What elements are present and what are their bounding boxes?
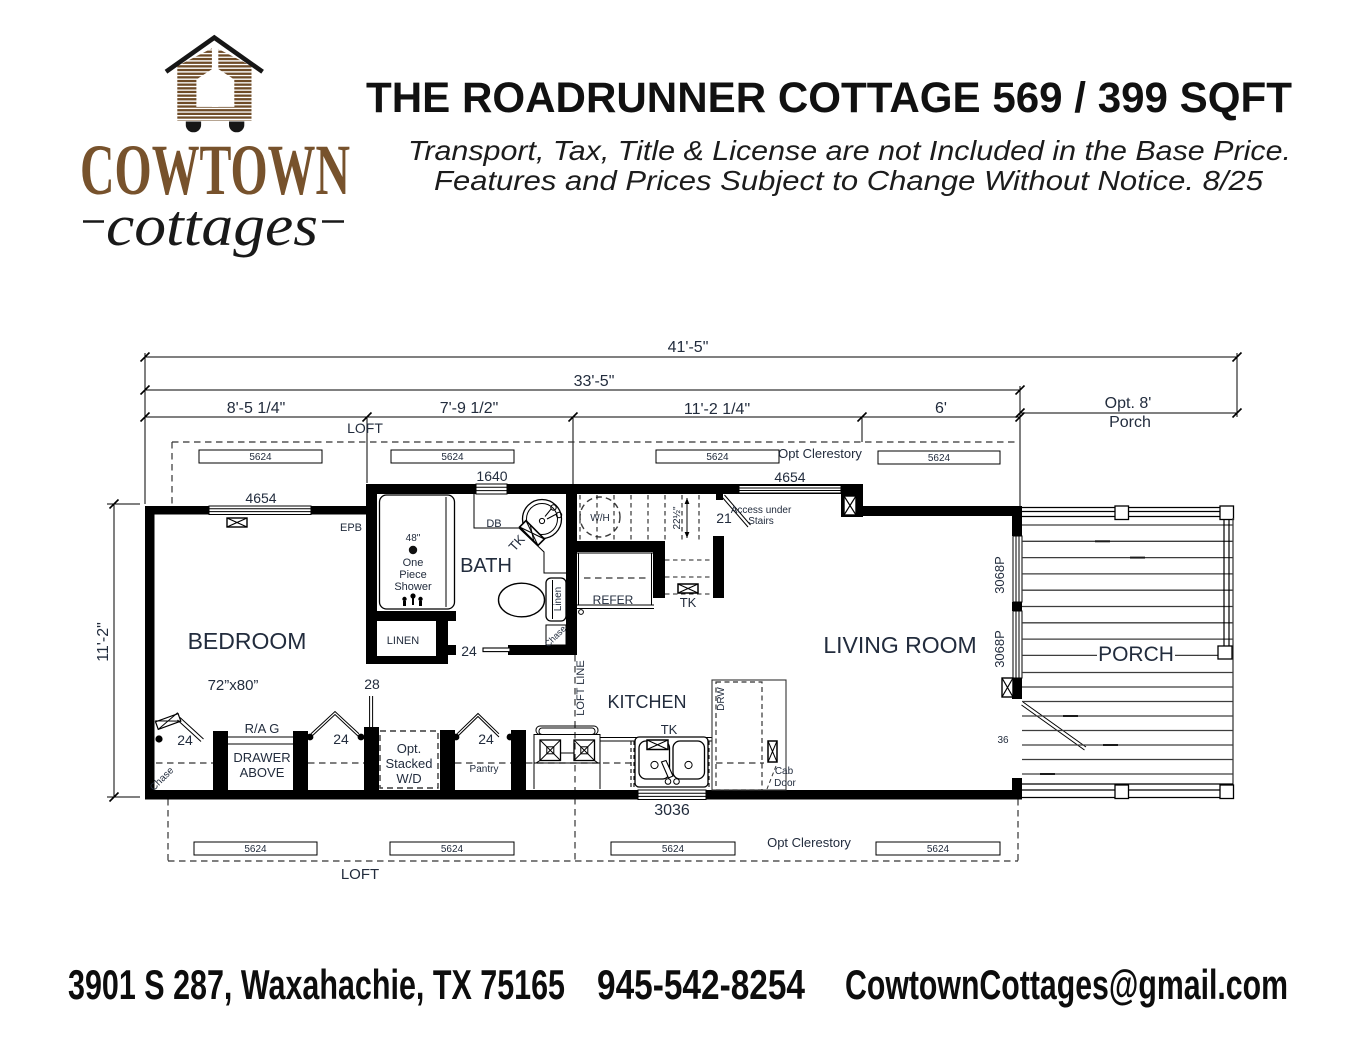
svg-text:3068P: 3068P xyxy=(992,630,1007,668)
svg-text:DRAWER: DRAWER xyxy=(233,750,290,765)
svg-text:Opt.: Opt. xyxy=(397,741,422,756)
svg-text:7'-9 1/2": 7'-9 1/2" xyxy=(440,400,499,417)
svg-text:Pantry: Pantry xyxy=(470,764,499,775)
svg-text:6': 6' xyxy=(935,400,947,417)
svg-text:24: 24 xyxy=(461,643,477,659)
svg-text:LINEN: LINEN xyxy=(387,635,419,647)
svg-text:945-542-8254: 945-542-8254 xyxy=(597,961,806,1008)
svg-text:5624: 5624 xyxy=(249,452,272,463)
svg-text:Access under: Access under xyxy=(731,505,792,516)
svg-text:CowtownCottages@gmail.com: CowtownCottages@gmail.com xyxy=(845,961,1288,1008)
svg-text:Shower: Shower xyxy=(394,581,432,593)
svg-text:5624: 5624 xyxy=(927,844,950,855)
svg-text:4654: 4654 xyxy=(774,469,805,485)
svg-text:BATH: BATH xyxy=(460,555,512,577)
svg-text:48": 48" xyxy=(406,533,421,544)
svg-text:Opt. 8': Opt. 8' xyxy=(1105,395,1152,412)
svg-text:DB: DB xyxy=(486,518,501,530)
svg-text:24: 24 xyxy=(478,731,494,747)
svg-text:Linen: Linen xyxy=(553,587,564,611)
svg-text:Features and Prices Subject to: Features and Prices Subject to Change Wi… xyxy=(434,165,1264,196)
svg-text:PORCH: PORCH xyxy=(1098,643,1174,666)
svg-text:Stacked: Stacked xyxy=(386,756,433,771)
svg-text:3036: 3036 xyxy=(654,802,690,819)
svg-text:BEDROOM: BEDROOM xyxy=(188,628,307,654)
svg-text:W/H: W/H xyxy=(590,513,609,524)
svg-text:36: 36 xyxy=(997,735,1009,746)
svg-text:8'-5 1/4": 8'-5 1/4" xyxy=(227,400,286,417)
svg-text:W/D: W/D xyxy=(396,771,421,786)
svg-text:Opt Clerestory: Opt Clerestory xyxy=(767,835,851,850)
svg-text:Cab: Cab xyxy=(775,766,794,777)
svg-text:22½": 22½" xyxy=(672,506,683,529)
svg-text:11'-2": 11'-2" xyxy=(95,622,112,662)
svg-text:41'-5": 41'-5" xyxy=(668,339,709,356)
svg-text:24: 24 xyxy=(177,732,193,748)
svg-text:One: One xyxy=(403,557,424,569)
svg-text:cottages: cottages xyxy=(106,193,318,258)
svg-text:LIVING ROOM: LIVING ROOM xyxy=(823,632,976,658)
svg-text:Porch: Porch xyxy=(1109,414,1151,431)
svg-text:LOFT LINE: LOFT LINE xyxy=(575,660,587,715)
svg-text:KITCHEN: KITCHEN xyxy=(607,692,686,712)
svg-text:24: 24 xyxy=(333,731,349,747)
svg-text:33'-5": 33'-5" xyxy=(574,373,615,390)
svg-text:28: 28 xyxy=(364,676,380,692)
svg-text:ABOVE: ABOVE xyxy=(240,765,285,780)
svg-text:5624: 5624 xyxy=(244,844,267,855)
svg-text:5624: 5624 xyxy=(441,452,464,463)
svg-text:TK: TK xyxy=(506,532,528,555)
svg-text:Transport, Tax, Title & Licens: Transport, Tax, Title & License are not … xyxy=(408,135,1291,166)
svg-text:21: 21 xyxy=(716,510,732,526)
svg-text:5624: 5624 xyxy=(706,452,729,463)
svg-text:LOFT: LOFT xyxy=(347,420,383,436)
svg-text:1640: 1640 xyxy=(476,468,507,484)
svg-text:R/A G: R/A G xyxy=(245,721,280,736)
svg-text:4654: 4654 xyxy=(245,490,276,506)
svg-text:EPB: EPB xyxy=(340,522,362,534)
svg-text:5624: 5624 xyxy=(662,844,685,855)
svg-text:Stairs: Stairs xyxy=(748,516,774,527)
svg-text:TK: TK xyxy=(680,595,697,610)
svg-text:TK: TK xyxy=(661,722,678,737)
svg-text:72”x80”: 72”x80” xyxy=(208,677,259,694)
svg-text:Opt Clerestory: Opt Clerestory xyxy=(778,446,862,461)
svg-text:5624: 5624 xyxy=(928,453,951,464)
svg-text:3901 S 287, Waxahachie, TX 751: 3901 S 287, Waxahachie, TX 75165 xyxy=(68,961,565,1008)
svg-text:5624: 5624 xyxy=(441,844,464,855)
svg-text:Door: Door xyxy=(774,778,796,789)
svg-text:LOFT: LOFT xyxy=(341,866,379,883)
svg-text:3068P: 3068P xyxy=(992,556,1007,594)
svg-text:THE ROADRUNNER COTTAGE 569 / 3: THE ROADRUNNER COTTAGE 569 / 399 SQFT xyxy=(366,74,1292,122)
svg-text:DRW: DRW xyxy=(716,687,727,711)
svg-text:11'-2 1/4": 11'-2 1/4" xyxy=(684,401,750,418)
svg-text:Piece: Piece xyxy=(399,569,427,581)
svg-text:REFER: REFER xyxy=(593,593,634,607)
